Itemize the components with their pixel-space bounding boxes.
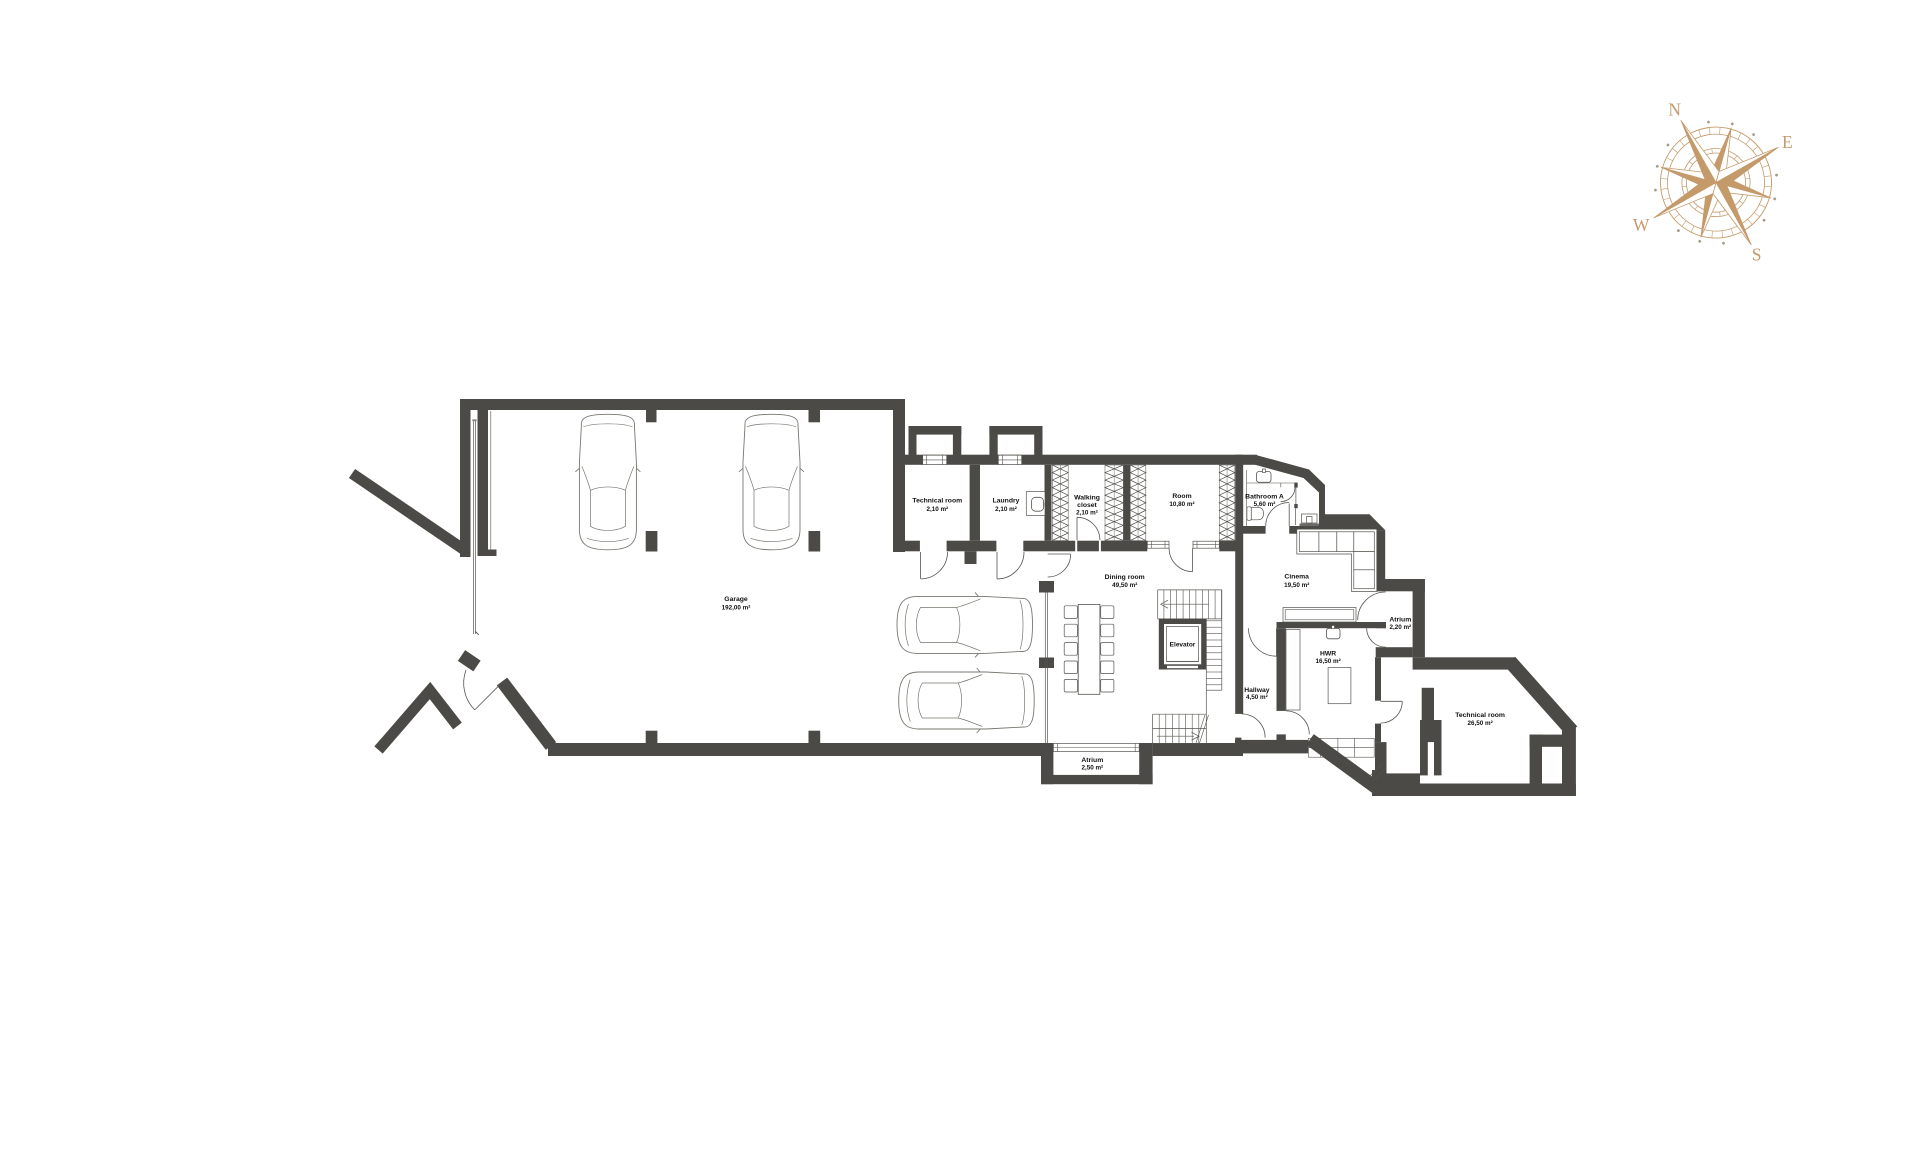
svg-text:Garage: Garage [724, 596, 748, 603]
svg-text:16,50 m²: 16,50 m² [1315, 658, 1340, 665]
svg-text:Atrium: Atrium [1389, 616, 1411, 623]
svg-text:Atrium: Atrium [1081, 757, 1103, 764]
svg-text:E: E [1782, 132, 1793, 152]
svg-text:2,20 m²: 2,20 m² [1389, 624, 1411, 631]
svg-text:2,10 m²: 2,10 m² [926, 506, 948, 513]
svg-text:5,60 m²: 5,60 m² [1254, 501, 1276, 508]
svg-text:Technical room: Technical room [912, 498, 962, 505]
svg-text:HWR: HWR [1320, 651, 1336, 658]
svg-text:Bathroom A: Bathroom A [1245, 494, 1284, 501]
svg-text:Cinema: Cinema [1284, 574, 1309, 581]
svg-text:W: W [1633, 215, 1650, 235]
svg-text:Laundry: Laundry [993, 498, 1020, 505]
svg-text:N: N [1668, 99, 1681, 119]
svg-text:Hallway: Hallway [1244, 687, 1270, 694]
svg-text:4,50 m²: 4,50 m² [1246, 694, 1268, 701]
svg-text:2,50 m²: 2,50 m² [1081, 764, 1103, 771]
svg-text:10,80 m²: 10,80 m² [1169, 501, 1194, 508]
svg-text:19,50 m²: 19,50 m² [1284, 582, 1309, 589]
svg-text:Elevator: Elevator [1170, 641, 1196, 648]
svg-text:49,50 m²: 49,50 m² [1112, 582, 1137, 589]
svg-text:2,10 m²: 2,10 m² [995, 506, 1017, 513]
svg-text:2,10 m²: 2,10 m² [1076, 510, 1098, 517]
svg-text:Dining room: Dining room [1105, 574, 1145, 581]
svg-text:Room: Room [1172, 493, 1191, 500]
svg-text:192,00 m²: 192,00 m² [722, 604, 751, 611]
svg-text:S: S [1752, 244, 1762, 264]
svg-text:Walking: Walking [1074, 495, 1100, 502]
svg-text:Technical room: Technical room [1455, 712, 1505, 719]
svg-text:26,50 m²: 26,50 m² [1467, 720, 1492, 727]
svg-text:closet: closet [1077, 502, 1097, 509]
